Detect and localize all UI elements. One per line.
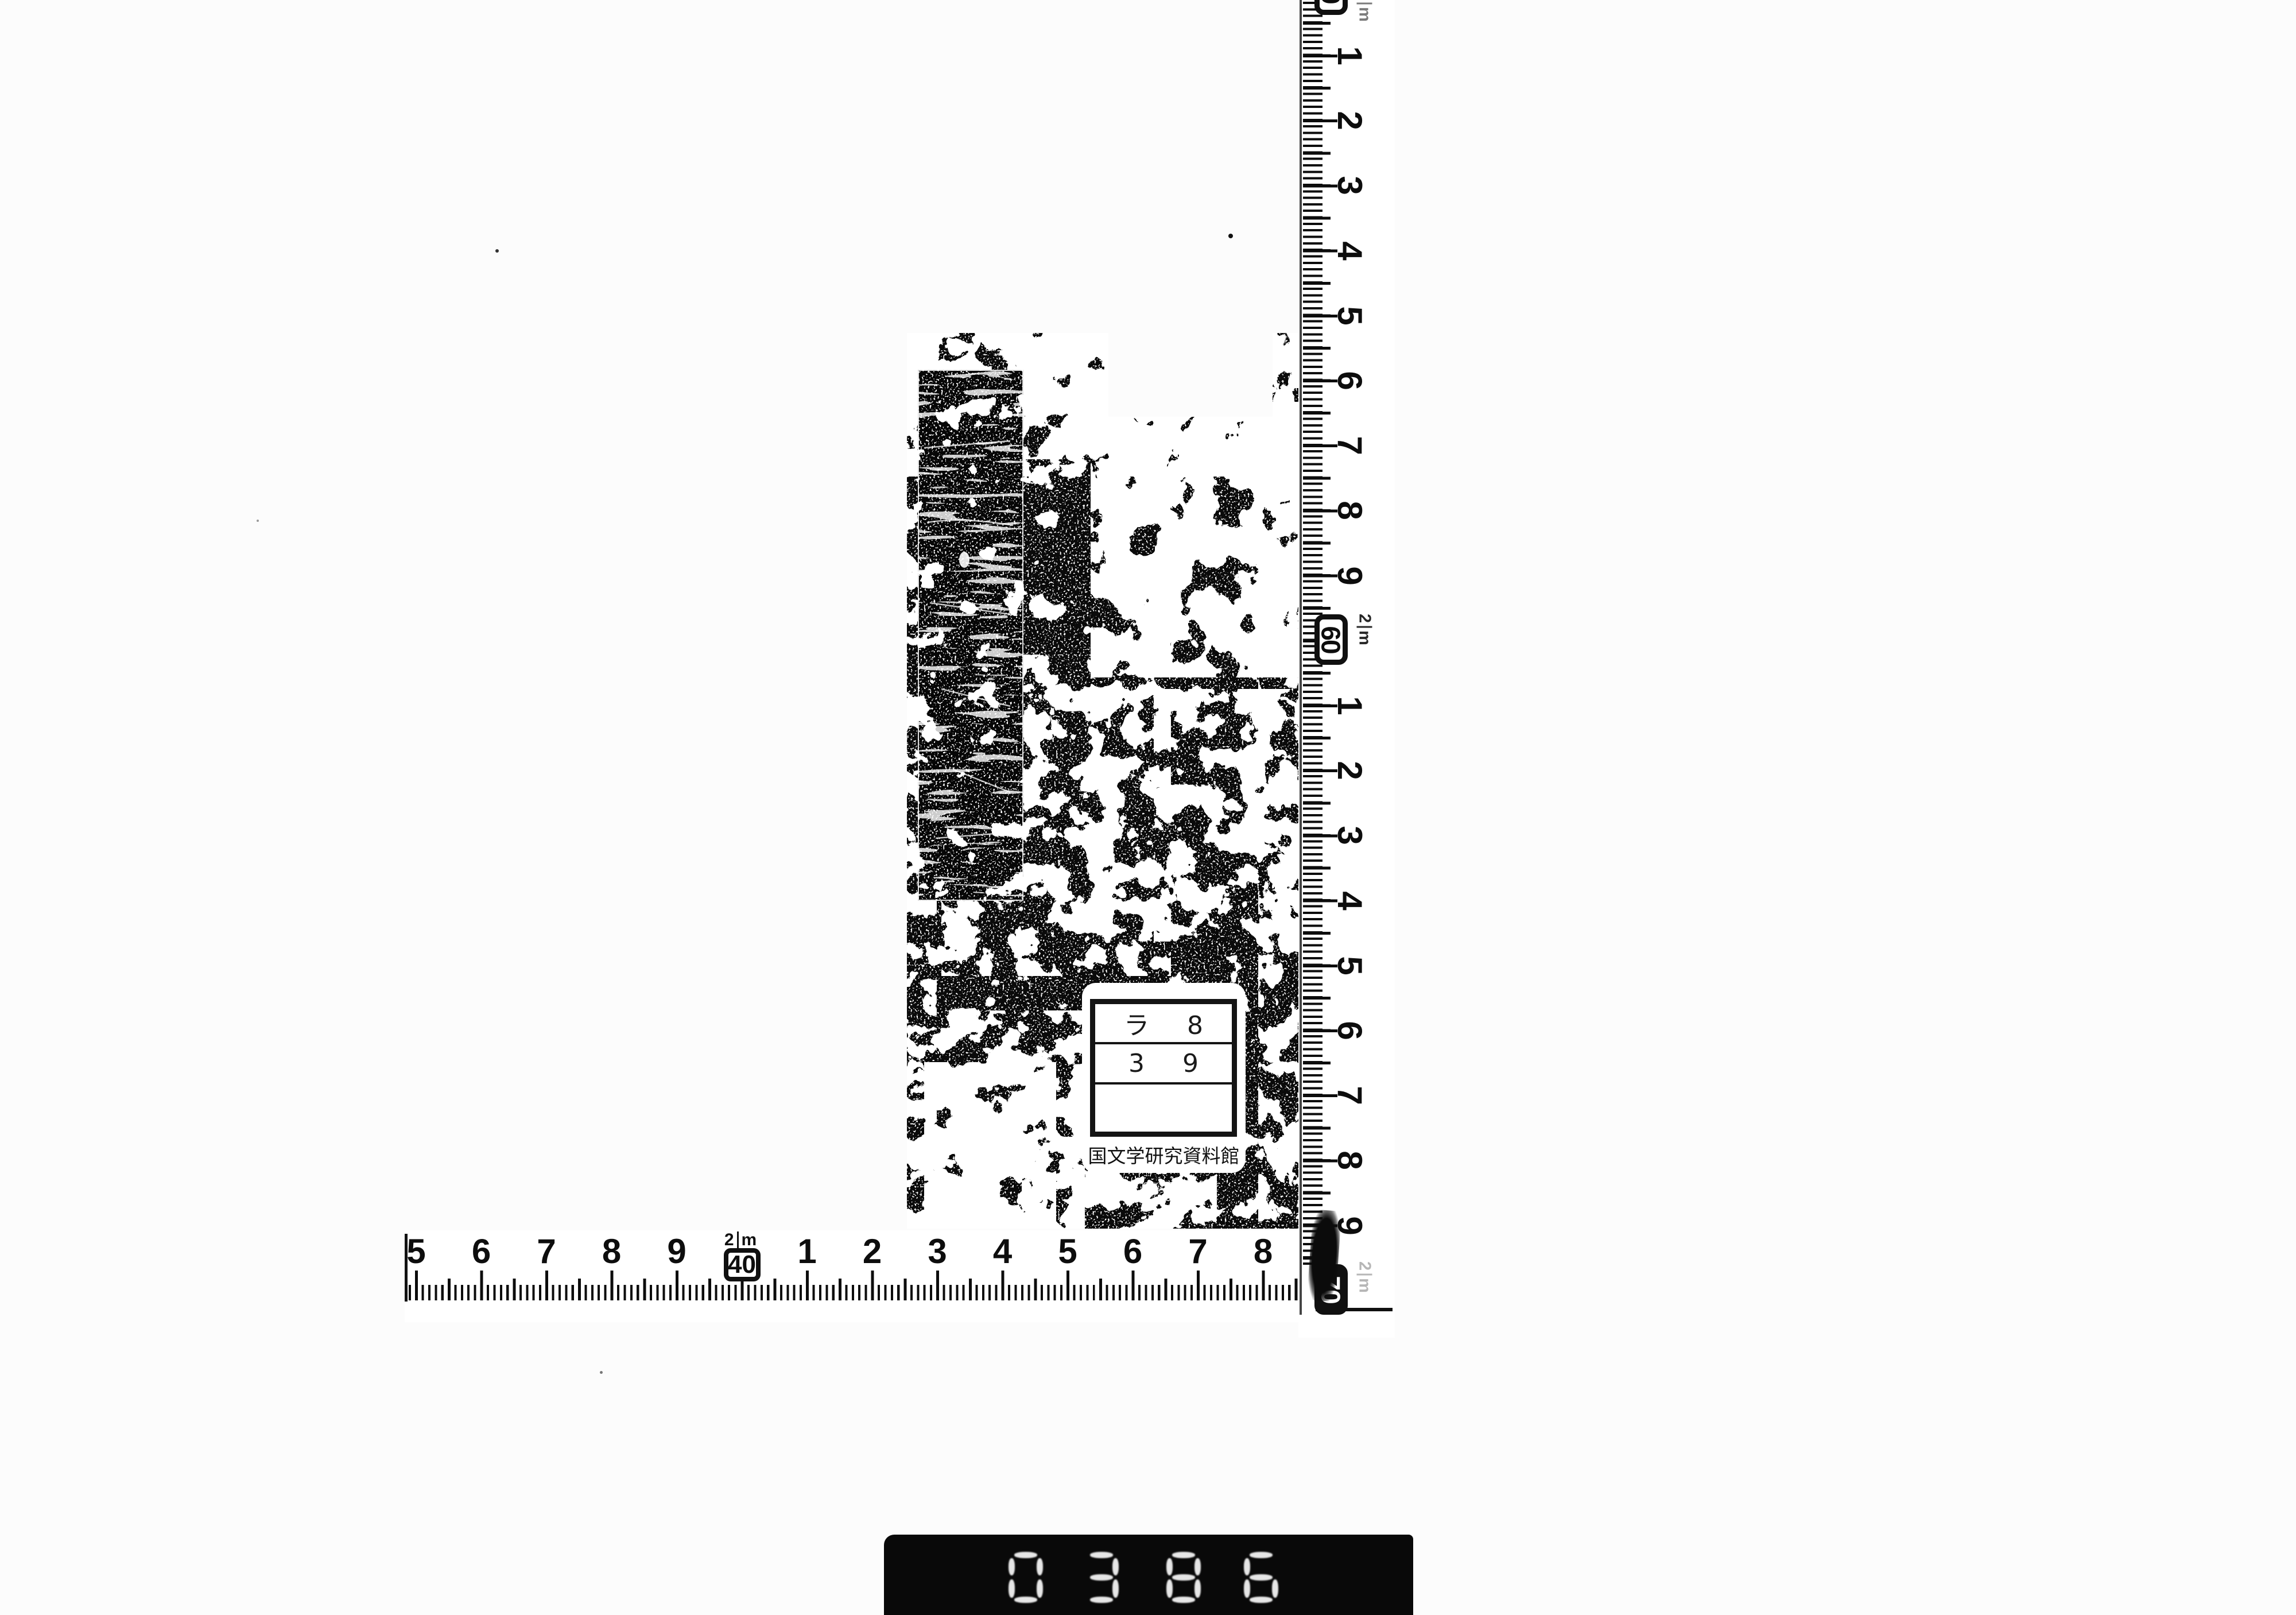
- vertical-ruler-edge: [1300, 0, 1302, 1315]
- archival-scan-page: { "label": { "row1": "ラ 8", "row2": "3 9…: [0, 0, 2296, 1612]
- vertical-ruler: 5012345678960123456789702m2m2m: [1298, 0, 1395, 1338]
- scan-speck: [600, 1371, 603, 1374]
- ruler-decade-box: 60: [1314, 614, 1348, 665]
- counter-digit-segment: [1272, 1579, 1278, 1598]
- call-number-box: ラ 8 3 9: [1090, 999, 1237, 1137]
- ruler-number: 7: [528, 1231, 565, 1267]
- counter-digit-segment: [1009, 1558, 1015, 1575]
- frame-counter-bar: [884, 1535, 1413, 1615]
- ruler-number: 2: [1332, 753, 1368, 788]
- ruler-number: 3: [919, 1231, 956, 1267]
- call-number-row-1: ラ 8: [1095, 1004, 1232, 1044]
- ruler-number: 9: [1332, 559, 1368, 593]
- ruler-number: 5: [1049, 1231, 1086, 1267]
- ruler-number: 8: [1245, 1231, 1282, 1267]
- ruler-number: 5: [1332, 948, 1368, 983]
- counter-digit-segment: [1037, 1558, 1043, 1575]
- cover-notch: [1108, 333, 1273, 417]
- ruler-number: 1: [1332, 688, 1368, 723]
- ruler-number: 7: [1180, 1231, 1216, 1267]
- counter-digit-segment: [1112, 1558, 1119, 1575]
- counter-digit-segment: [1166, 1579, 1173, 1598]
- counter-digit-segment: [1250, 1574, 1273, 1581]
- ruler-number: 6: [1332, 363, 1368, 398]
- ruler-decade-box: 50: [1314, 0, 1348, 15]
- ruler-number: 5: [1332, 299, 1368, 333]
- ruler-unit-label: 2m: [1355, 1252, 1374, 1303]
- ruler-decade-box: 40: [724, 1248, 761, 1281]
- call-number-label: ラ 8 3 9 国文学研究資料館: [1082, 983, 1246, 1173]
- ruler-unit-label: 2m: [1355, 0, 1374, 32]
- scan-speck: [1228, 234, 1233, 238]
- ruler-number: 4: [1332, 884, 1368, 918]
- horizontal-ruler-cm-ticks: [415, 1271, 1283, 1300]
- counter-digit-segment: [1194, 1579, 1201, 1598]
- ruler-number: 3: [1332, 818, 1368, 853]
- ruler-number: 6: [463, 1231, 500, 1267]
- call-number-row-3: [1095, 1085, 1232, 1127]
- ruler-number: 6: [1115, 1231, 1151, 1267]
- ruler-number: 4: [984, 1231, 1021, 1267]
- ruler-number: 2: [854, 1231, 891, 1267]
- call-number-row-2: 3 9: [1095, 1044, 1232, 1085]
- counter-digit-segment: [1090, 1597, 1113, 1603]
- scan-speck: [257, 520, 259, 522]
- ruler-unit-label: 2m: [1355, 604, 1374, 656]
- horizontal-ruler: 5678940123456782m: [405, 1230, 1335, 1322]
- ruler-number: 1: [789, 1231, 825, 1267]
- label-caption: 国文学研究資料館: [1082, 1141, 1246, 1168]
- ruler-number: 7: [1332, 428, 1368, 463]
- ruler-number: 8: [1332, 493, 1368, 528]
- ruler-number: 7: [1332, 1078, 1368, 1113]
- ruler-number: 6: [1332, 1013, 1368, 1048]
- counter-digit-segment: [1172, 1597, 1195, 1603]
- ruler-number: 9: [658, 1231, 695, 1267]
- scan-speck: [495, 249, 499, 253]
- counter-digit-segment: [1112, 1579, 1119, 1598]
- ruler-number: 4: [1332, 234, 1368, 268]
- counter-digit-segment: [1244, 1558, 1250, 1575]
- ruler-number: 2: [1332, 103, 1368, 138]
- ruler-number: 3: [1332, 168, 1368, 203]
- counter-digit-segment: [1166, 1558, 1173, 1575]
- counter-digit-segment: [1090, 1552, 1113, 1558]
- ruler-number: 5: [405, 1231, 435, 1267]
- counter-digit-segment: [1172, 1574, 1195, 1581]
- counter-digit-segment: [1250, 1597, 1273, 1603]
- counter-digit-segment: [1250, 1552, 1273, 1558]
- counter-digit-segment: [1090, 1574, 1113, 1581]
- counter-digit-segment: [1009, 1579, 1015, 1598]
- ruler-number: 8: [594, 1231, 630, 1267]
- ruler-unit-label: 2m: [715, 1230, 766, 1250]
- counter-digit-segment: [1244, 1579, 1250, 1598]
- counter-digit-segment: [1172, 1552, 1195, 1558]
- counter-digit-segment: [1037, 1579, 1043, 1598]
- counter-digit-segment: [1194, 1558, 1201, 1575]
- counter-digit-segment: [1014, 1552, 1037, 1558]
- ruler-number: 1: [1332, 38, 1368, 73]
- counter-digit-segment: [1014, 1597, 1037, 1603]
- ruler-number: 8: [1332, 1143, 1368, 1178]
